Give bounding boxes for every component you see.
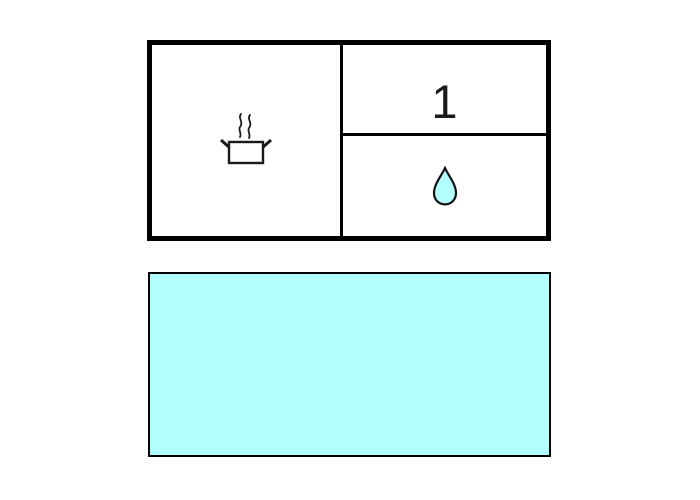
water-drop-cell xyxy=(343,136,546,236)
count-value: 1 xyxy=(431,78,457,125)
heat-source-cell xyxy=(152,45,343,236)
steaming-pot-icon xyxy=(218,110,274,171)
water-drop-icon xyxy=(432,166,458,211)
diagram-top-panel: 1 xyxy=(147,40,551,241)
water-drop-shape xyxy=(434,168,456,204)
top-panel-right-column: 1 xyxy=(343,45,546,236)
count-cell: 1 xyxy=(343,45,546,136)
water-body-panel xyxy=(148,272,551,457)
